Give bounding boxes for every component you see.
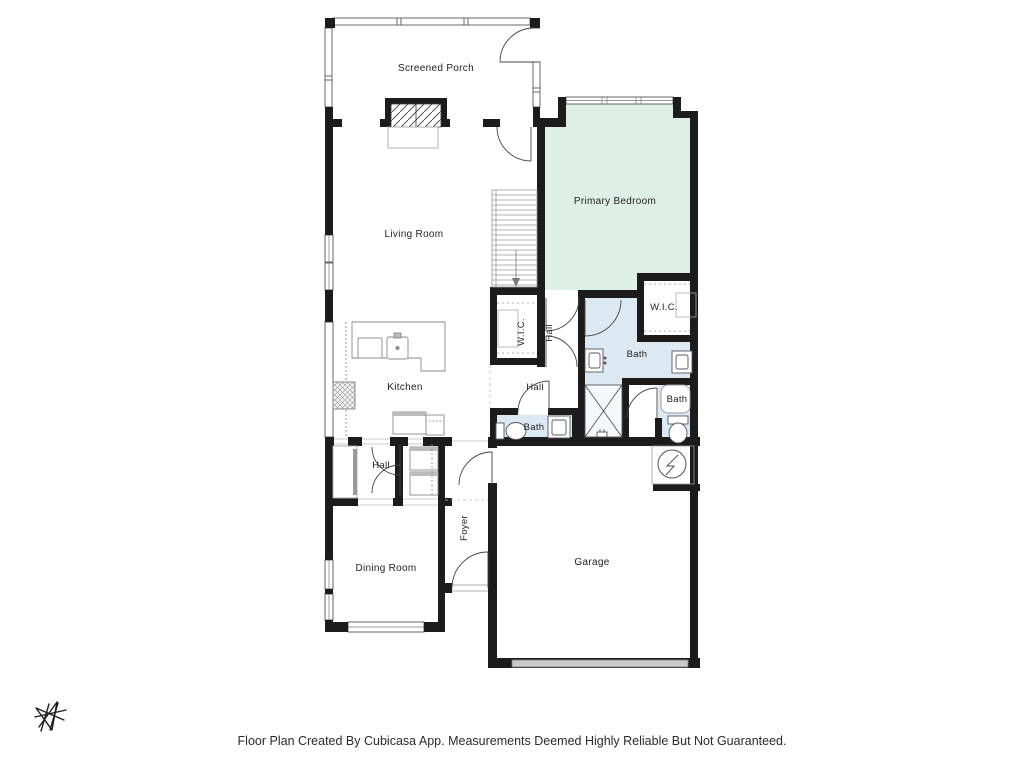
room-label-bath-half: Bath [524, 422, 545, 433]
room-label-dining-room: Dining Room [355, 563, 416, 574]
floor-plan: Screened Porch Living Room Primary Bedro… [0, 0, 1024, 768]
room-label-hall-center: Hall [526, 382, 544, 393]
shower [585, 385, 622, 437]
toilet-icon [496, 423, 504, 439]
front-door-threshold [452, 584, 488, 592]
hall-closet [333, 446, 357, 498]
kitchen-exterior-thin-wall [325, 322, 333, 437]
room-label-hall-bedroom: Hall [544, 324, 555, 342]
room-label-screened-porch: Screened Porch [398, 63, 474, 74]
water-heater-icon [652, 446, 694, 484]
room-label-primary-bedroom: Primary Bedroom [574, 196, 656, 207]
shower-drain-icon [597, 432, 607, 437]
kitchen-faucet [394, 333, 401, 338]
living-porch-door [497, 127, 531, 161]
room-label-hall-rear: Hall [372, 460, 390, 471]
kitchen-fixtures [333, 322, 445, 436]
floor-plan-page: Screened Porch Living Room Primary Bedro… [0, 0, 1024, 768]
porch-door [500, 28, 534, 62]
room-label-bath-primary: Bath [627, 349, 648, 360]
laundry-closet [410, 444, 438, 497]
room-label-bath-secondary: Bath [667, 394, 688, 405]
room-label-foyer: Foyer [459, 515, 470, 541]
garage-entry-door [459, 452, 492, 485]
room-label-kitchen: Kitchen [387, 382, 422, 393]
staircase [492, 190, 537, 287]
room-label-wic-primary: W.I.C. [516, 318, 527, 346]
footer-disclaimer: Floor Plan Created By Cubicasa App. Meas… [0, 734, 1024, 748]
cooktop [358, 338, 382, 358]
sliding-door [353, 449, 357, 495]
front-door [452, 552, 488, 588]
counter-extension [426, 415, 444, 435]
hearth [388, 127, 438, 148]
garage-door [512, 660, 688, 667]
fireplace [388, 104, 441, 148]
bath-secondary-door [627, 388, 657, 418]
room-label-wic-secondary: W.I.C. [650, 302, 678, 313]
brand-logo-icon [35, 702, 66, 731]
room-label-garage: Garage [574, 557, 609, 568]
porch-wall-mullions [325, 18, 540, 92]
room-label-living-room: Living Room [385, 229, 444, 240]
